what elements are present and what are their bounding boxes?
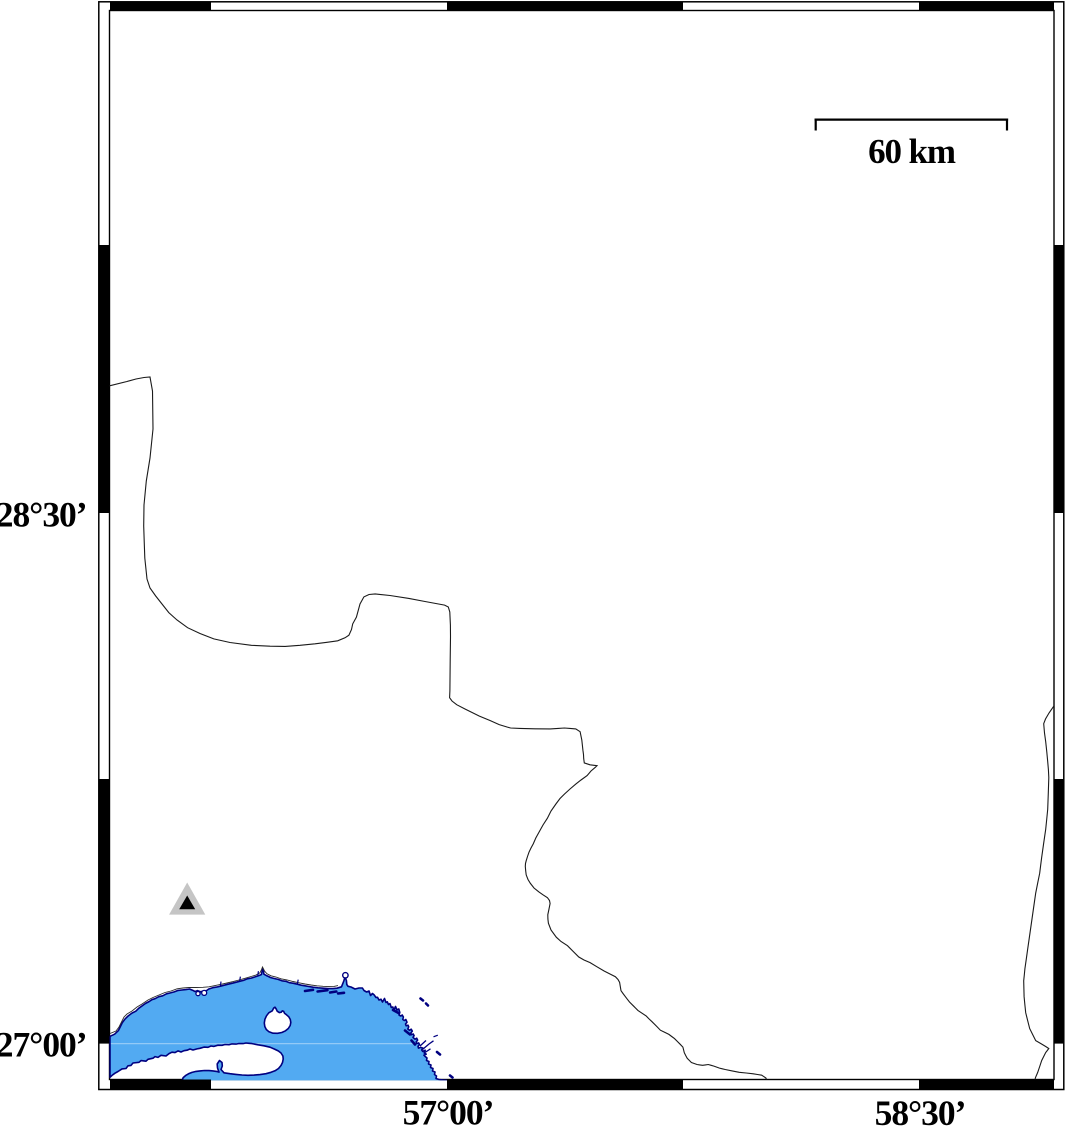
svg-text:28°30’: 28°30’: [0, 495, 87, 535]
svg-text:60 km: 60 km: [868, 132, 956, 171]
svg-text:57°00’: 57°00’: [403, 1093, 494, 1129]
svg-text:58°30’: 58°30’: [875, 1093, 966, 1128]
svg-text:27°00’: 27°00’: [0, 1025, 87, 1065]
